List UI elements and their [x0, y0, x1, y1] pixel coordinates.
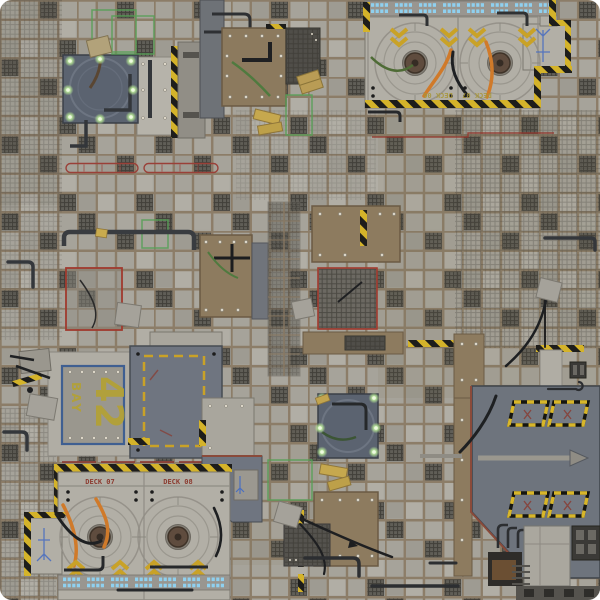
red-frame-mesh-square [318, 268, 377, 329]
hazard-stub-south [298, 574, 304, 592]
rust-platform-top-center [222, 24, 286, 106]
landing-platform-north: DECK 06 DECK 07 [363, 0, 572, 122]
deck-label-north-right: DECK 07 [462, 91, 492, 99]
bay-number: 42 [87, 376, 131, 429]
battle-mat-page: DECK 06 DECK 07 [0, 0, 600, 600]
green-light [65, 56, 76, 67]
deck-label-north-left: DECK 06 [423, 91, 453, 99]
deck-label-south-left: DECK 07 [85, 478, 115, 486]
rotary-pad-center-south [315, 393, 382, 459]
hazard-strip-top-left [171, 46, 178, 138]
hazard-border-south [55, 464, 232, 472]
annex-panel-south [28, 518, 62, 574]
deck-label-south-right: DECK 08 [163, 478, 193, 486]
bay-42-pad: BAY 42 [48, 352, 138, 456]
bay-label: BAY [69, 382, 83, 414]
battle-mat: DECK 06 DECK 07 [0, 0, 600, 600]
mesh-column-center [268, 202, 300, 376]
vent-hatch [509, 402, 548, 425]
red-frame-square-west [66, 268, 122, 330]
